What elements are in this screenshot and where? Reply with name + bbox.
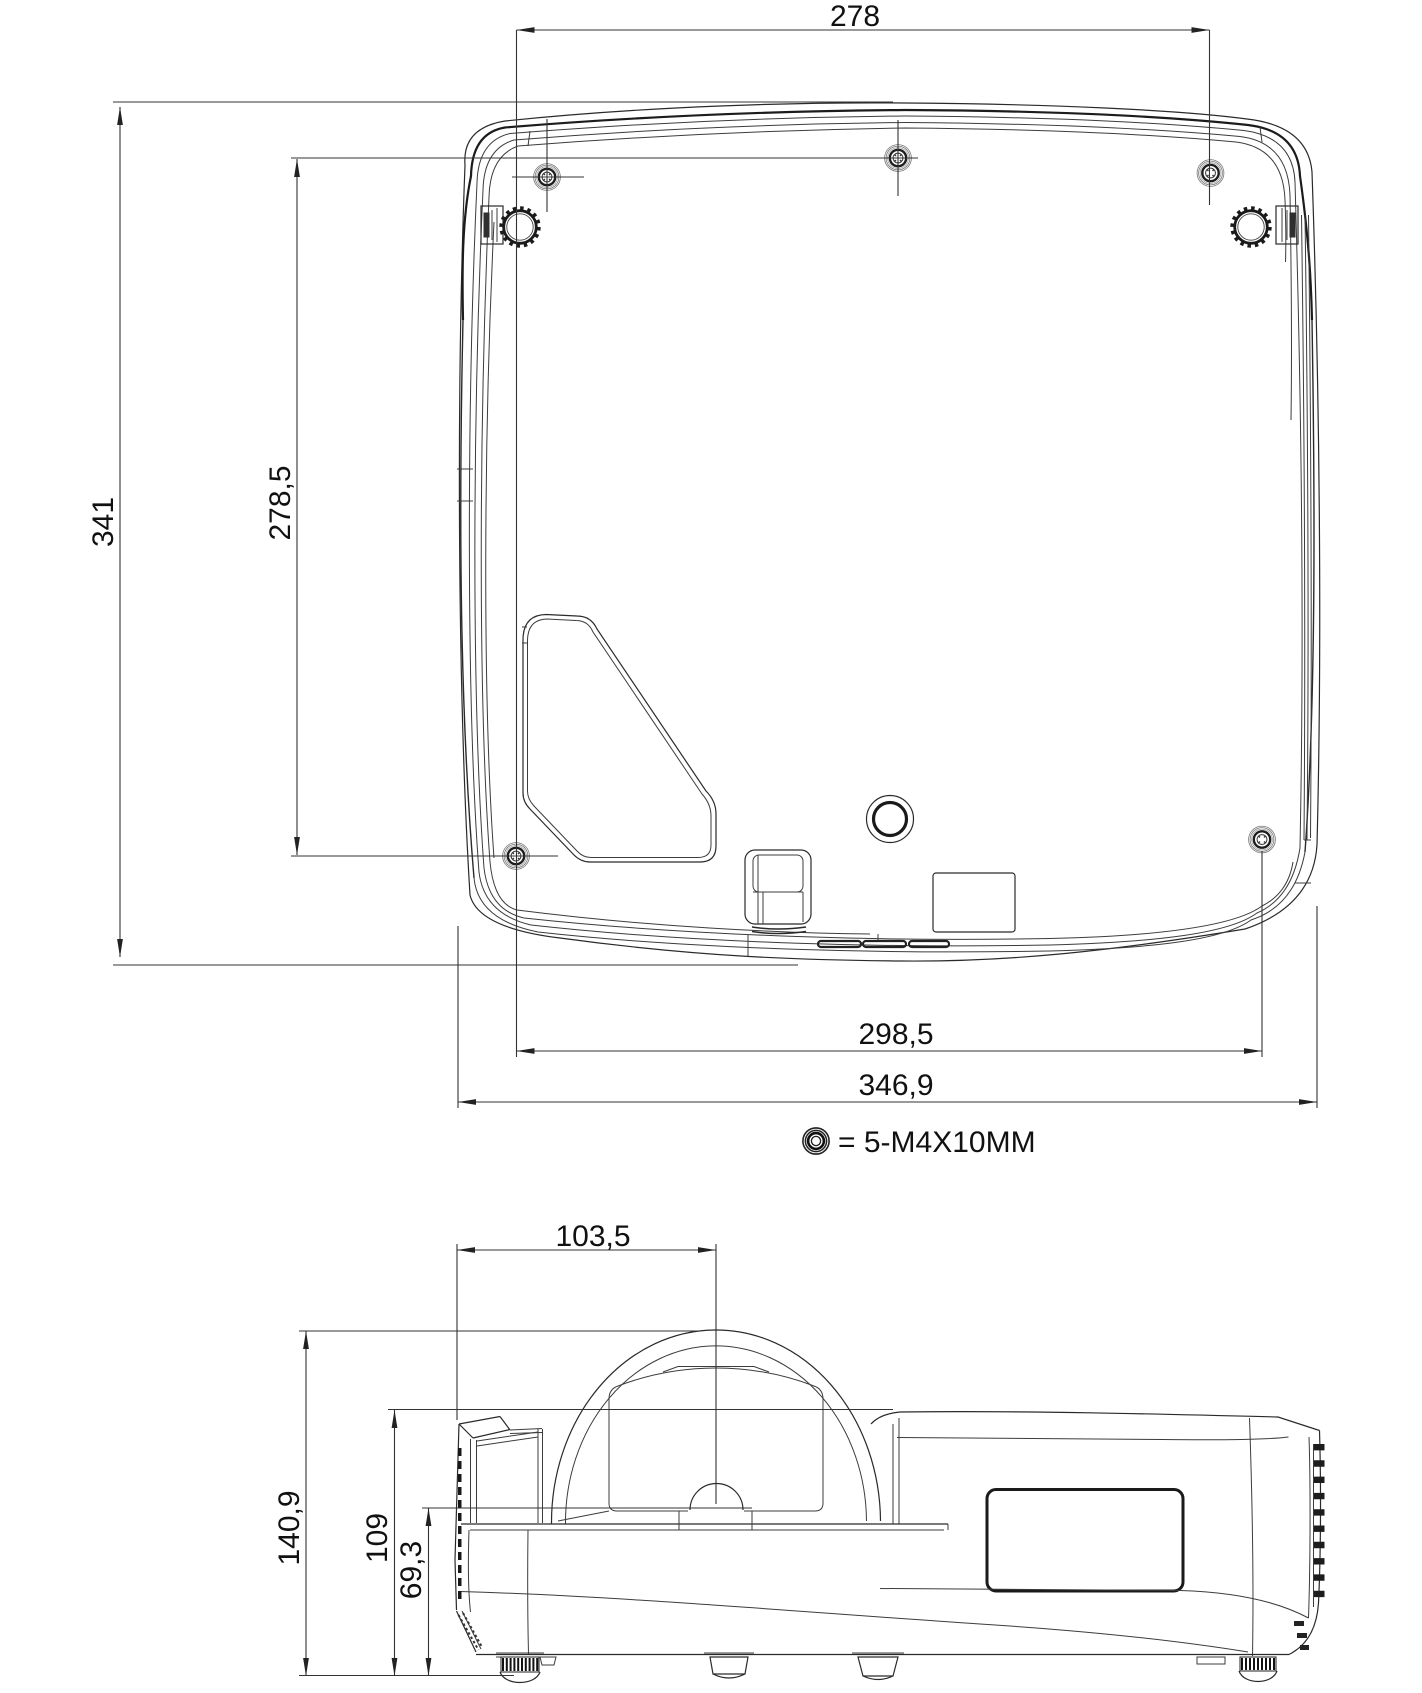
svg-text:341: 341 [87, 497, 120, 547]
svg-text:140,9: 140,9 [273, 1490, 306, 1565]
svg-text:298,5: 298,5 [858, 1018, 933, 1051]
svg-text:= 5-M4X10MM: = 5-M4X10MM [838, 1126, 1036, 1159]
svg-text:103,5: 103,5 [555, 1220, 630, 1253]
svg-text:69,3: 69,3 [395, 1541, 428, 1599]
svg-text:109: 109 [361, 1513, 394, 1563]
svg-text:346,9: 346,9 [858, 1069, 933, 1102]
svg-text:278,5: 278,5 [264, 465, 297, 540]
svg-text:278: 278 [830, 0, 880, 33]
